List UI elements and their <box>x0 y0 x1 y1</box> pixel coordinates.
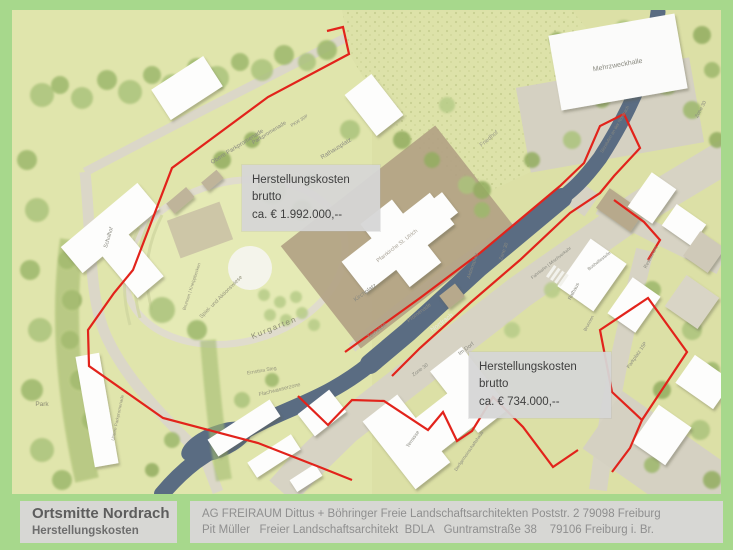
cost-value: ca. € 734.000,-- <box>479 394 601 411</box>
sheet-subtitle: Herstellungskosten <box>32 524 177 539</box>
site-plan-svg: MehrzweckhalleFriedhofObere Parkpromenad… <box>12 10 721 494</box>
cost-line: Herstellungskosten <box>479 359 601 376</box>
footer-credit-box: AG FREIRAUM Dittus + Böhringer Freie Lan… <box>190 501 723 543</box>
map-label: Park <box>35 401 49 408</box>
cost-line: brutto <box>479 376 601 393</box>
cost-value: ca. € 1.992.000,-- <box>252 207 370 224</box>
cost-line: Herstellungskosten <box>252 172 370 189</box>
plan-sheet: { "colors": { "frame_green": "#a7d88c", … <box>0 0 733 550</box>
sheet-title: Ortsmitte Nordrach <box>32 505 177 524</box>
site-plan-map: MehrzweckhalleFriedhofObere Parkpromenad… <box>12 10 721 494</box>
cost-annotation-east: Herstellungskosten brutto ca. € 734.000,… <box>469 352 611 418</box>
cost-line: brutto <box>252 189 370 206</box>
credit-line-2: Pit Müller Freier Landschaftsarchitekt B… <box>202 522 723 538</box>
cost-annotation-west: Herstellungskosten brutto ca. € 1.992.00… <box>242 165 380 231</box>
credit-line-1: AG FREIRAUM Dittus + Böhringer Freie Lan… <box>202 506 723 522</box>
footer-title-box: Ortsmitte Nordrach Herstellungskosten <box>20 501 177 543</box>
sheet-footer: Ortsmitte Nordrach Herstellungskosten AG… <box>0 494 733 550</box>
